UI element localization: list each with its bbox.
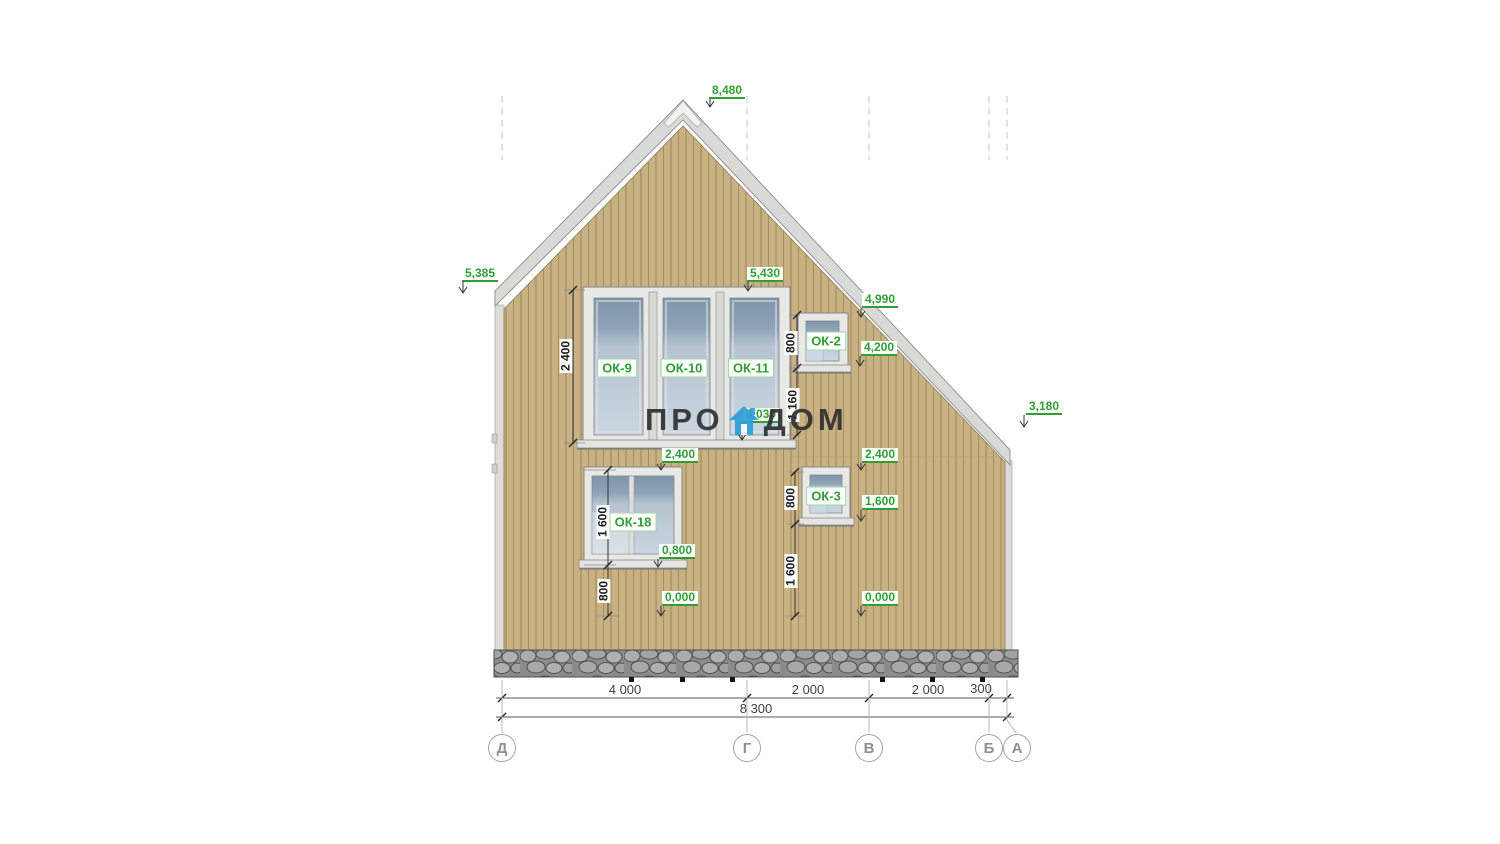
dim-ok2-height: 800 bbox=[785, 331, 798, 355]
watermark-logo: ПРО ДОМ bbox=[645, 402, 848, 438]
axis-bubble-b: Б bbox=[975, 734, 1003, 762]
stone-foundation bbox=[494, 650, 1018, 682]
elevation-mark-roof-right-upper: 4,990 bbox=[862, 293, 898, 308]
elevation-mark-ground-left: 0,000 bbox=[662, 591, 698, 606]
dim-segment-d-g: 4 000 bbox=[609, 682, 642, 697]
window-label-ok18: ОК-18 bbox=[610, 513, 657, 532]
window-label-ok2: ОК-2 bbox=[806, 332, 846, 351]
dim-ok18-height: 1 600 bbox=[597, 505, 610, 539]
house-icon bbox=[729, 405, 759, 435]
elevation-mark-ok18-top: 2,400 bbox=[662, 448, 698, 463]
elevation-mark-eave-left: 5,385 bbox=[462, 267, 498, 282]
dim-segment-b-a: 300 bbox=[970, 681, 992, 696]
axis-dashed-lines bbox=[502, 96, 1007, 160]
elevation-mark-upper-window-top: 5,430 bbox=[747, 267, 783, 282]
dim-upper-window-height: 2 400 bbox=[560, 339, 573, 373]
elevation-mark-ok3-top: 2,400 bbox=[862, 448, 898, 463]
window-label-ok11: ОК-11 bbox=[728, 359, 774, 378]
axis-bubble-d: Д bbox=[488, 734, 516, 762]
dim-ok3-height: 800 bbox=[785, 486, 798, 510]
elevation-mark-peak: 8,480 bbox=[709, 84, 745, 99]
dim-segment-v-b: 2 000 bbox=[912, 682, 945, 697]
elevation-mark-eave-right: 3,180 bbox=[1026, 400, 1062, 415]
axis-bubble-g: Г bbox=[733, 734, 761, 762]
window-label-ok10: ОК-10 bbox=[661, 359, 708, 378]
elevation-mark-ok18-sill: 0,800 bbox=[659, 544, 695, 559]
axis-bubble-v: В bbox=[855, 734, 883, 762]
dim-below-ok3: 1 600 bbox=[785, 554, 798, 588]
watermark-text-pro: ПРО bbox=[645, 402, 724, 438]
window-label-ok3: ОК-3 bbox=[806, 487, 846, 506]
elevation-mark-ok3-sill: 1,600 bbox=[862, 495, 898, 510]
dim-below-ok18: 800 bbox=[598, 579, 611, 603]
watermark-text-dom: ДОМ bbox=[764, 402, 848, 438]
window-label-ok9: ОК-9 bbox=[597, 359, 637, 378]
dim-total-width: 8 300 bbox=[740, 701, 773, 716]
dim-segment-g-v: 2 000 bbox=[792, 682, 825, 697]
axis-bubble-a: А bbox=[1003, 734, 1031, 762]
elevation-drawing-canvas: 8,480 5,385 5,430 4,990 4,200 3,180 3,03… bbox=[0, 0, 1500, 844]
elevation-mark-ground-right: 0,000 bbox=[862, 591, 898, 606]
elevation-mark-roof-right-lower: 4,200 bbox=[861, 341, 897, 356]
